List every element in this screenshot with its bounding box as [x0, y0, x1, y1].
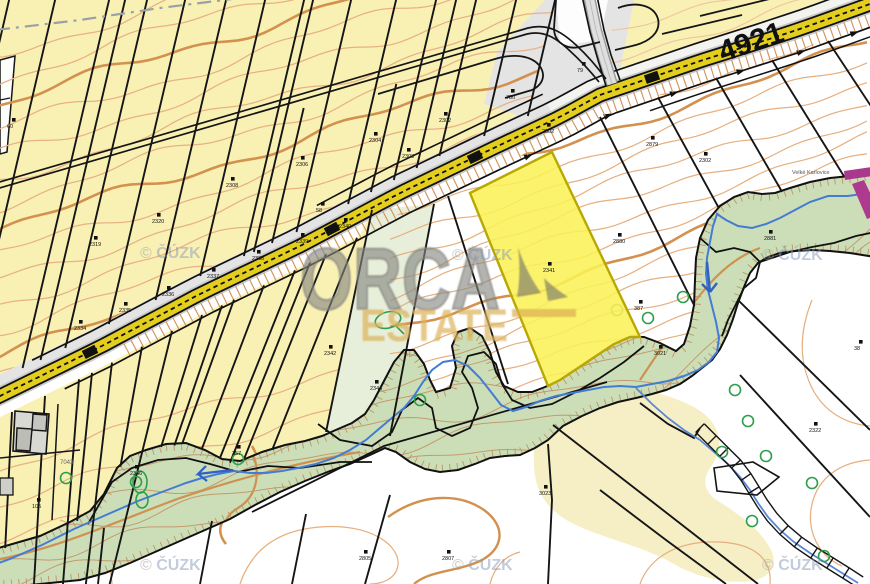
svg-text:2304: 2304	[369, 138, 381, 144]
svg-text:© ČÚZK: © ČÚZK	[762, 245, 823, 264]
svg-text:2302: 2302	[439, 118, 451, 124]
svg-text:2334: 2334	[74, 326, 86, 332]
svg-text:2340: 2340	[339, 224, 351, 230]
svg-text:2344: 2344	[370, 386, 382, 392]
svg-text:3021: 3021	[654, 351, 666, 357]
svg-text:2308: 2308	[226, 183, 238, 189]
svg-text:2322: 2322	[809, 428, 821, 434]
svg-text:© ČÚZK: © ČÚZK	[452, 555, 513, 574]
svg-text:387: 387	[634, 306, 643, 312]
svg-text:2335: 2335	[119, 308, 131, 314]
svg-text:3023: 3023	[539, 491, 551, 497]
svg-text:2881: 2881	[764, 236, 776, 242]
svg-text:2306: 2306	[296, 162, 308, 168]
svg-text:© ČÚZK: © ČÚZK	[140, 555, 201, 574]
svg-text:ESTATE: ESTATE	[360, 300, 508, 351]
svg-text:79: 79	[577, 68, 583, 74]
svg-text:2302: 2302	[542, 129, 554, 135]
svg-text:2341: 2341	[543, 268, 555, 274]
svg-text:105: 105	[32, 504, 41, 510]
svg-text:2342: 2342	[324, 351, 336, 357]
svg-text:2302: 2302	[699, 158, 711, 164]
svg-text:© ČÚZK: © ČÚZK	[762, 555, 823, 574]
svg-text:2337: 2337	[207, 274, 219, 280]
svg-text:2880: 2880	[613, 239, 625, 245]
svg-text:58: 58	[316, 208, 322, 214]
svg-text:© ČÚZK: © ČÚZK	[140, 243, 201, 262]
svg-text:© ČÚZK: © ČÚZK	[452, 245, 513, 264]
svg-text:2879: 2879	[646, 142, 658, 148]
svg-text:Velké Karlovice: Velké Karlovice	[792, 170, 830, 176]
svg-text:2336: 2336	[162, 292, 174, 298]
svg-text:7043: 7043	[60, 460, 74, 466]
svg-text:2303: 2303	[402, 154, 414, 160]
svg-text:357: 357	[232, 451, 241, 457]
svg-text:2338: 2338	[252, 256, 264, 262]
svg-text:2319: 2319	[89, 242, 101, 248]
svg-text:38: 38	[854, 346, 860, 352]
svg-text:2805: 2805	[359, 556, 371, 562]
svg-text:2320: 2320	[152, 219, 164, 225]
svg-text:780: 780	[506, 95, 515, 101]
svg-text:60: 60	[7, 124, 13, 130]
svg-text:2346: 2346	[130, 471, 142, 477]
